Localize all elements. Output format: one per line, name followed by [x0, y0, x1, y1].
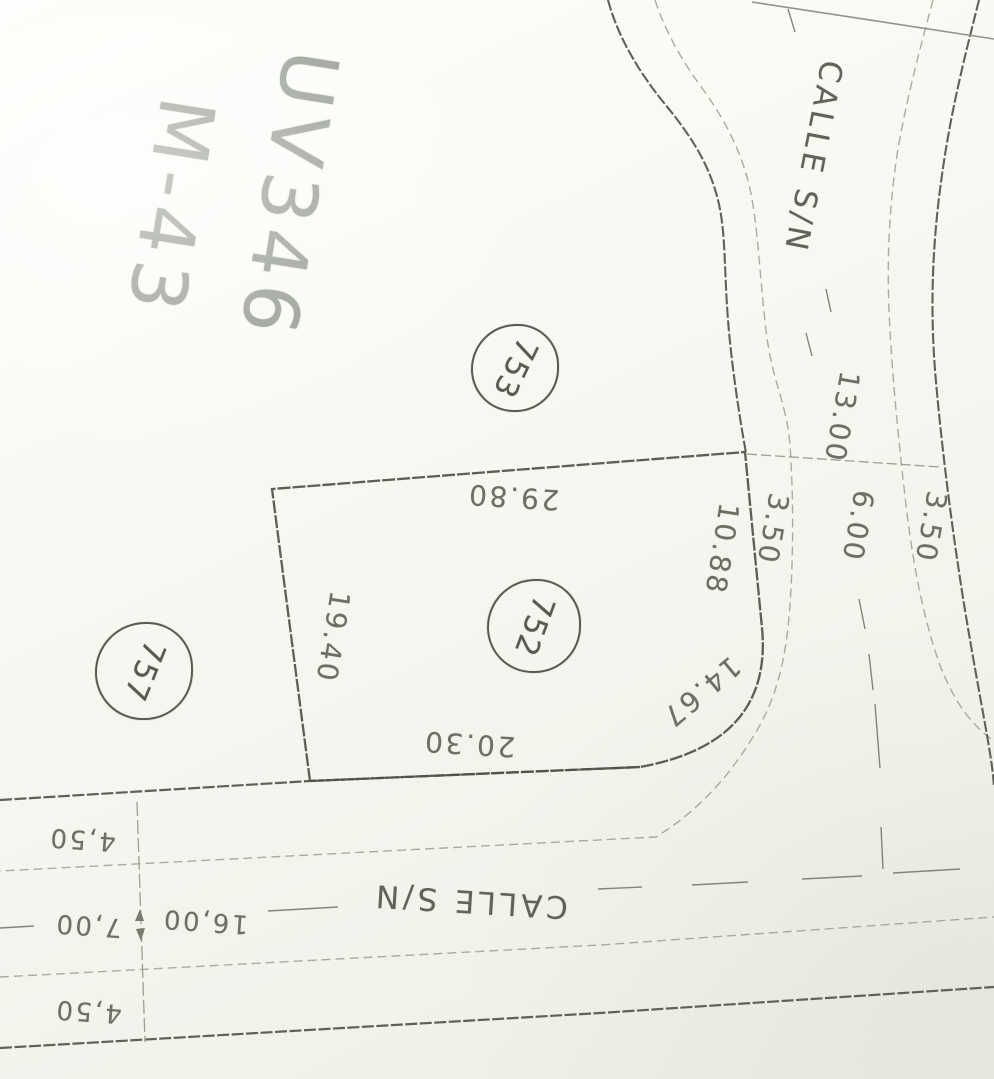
street-bottom-north-edge — [0, 767, 640, 800]
street-bottom-south-edge — [0, 987, 994, 1048]
lot-753-number: 753 — [485, 332, 545, 404]
dim-bottom-edge: 20.30 — [422, 725, 517, 764]
sidewalk-line-west-and-corner — [0, 0, 793, 871]
dim-street-bottom-sidewalk-south: 4,50 — [53, 994, 123, 1029]
street-top-west-edge — [608, 0, 746, 453]
lot-752-number: 752 — [506, 591, 561, 662]
street-bottom-south-sidewalk-line — [0, 917, 994, 977]
plan-canvas: UV346 M-43 CALLE S/N CALLE S/N 29.80 19.… — [0, 0, 994, 1079]
street-top-east-sidewalk-line — [888, 0, 994, 741]
lot-757-number: 757 — [116, 635, 173, 706]
lot-752-circle: 752 — [487, 579, 581, 673]
lot-757-circle: 757 — [95, 622, 193, 720]
dimension-line-bottom-street — [135, 802, 145, 1042]
lot-753-circle: 753 — [471, 324, 559, 412]
dim-street-bottom-total: 16,00 — [161, 903, 250, 939]
boundary-line-top-right — [752, 2, 994, 39]
dim-street-bottom-road: 7,00 — [53, 908, 123, 943]
dim-top-edge: 29.80 — [466, 478, 561, 517]
dim-street-bottom-sidewalk-north: 4,50 — [47, 822, 117, 857]
